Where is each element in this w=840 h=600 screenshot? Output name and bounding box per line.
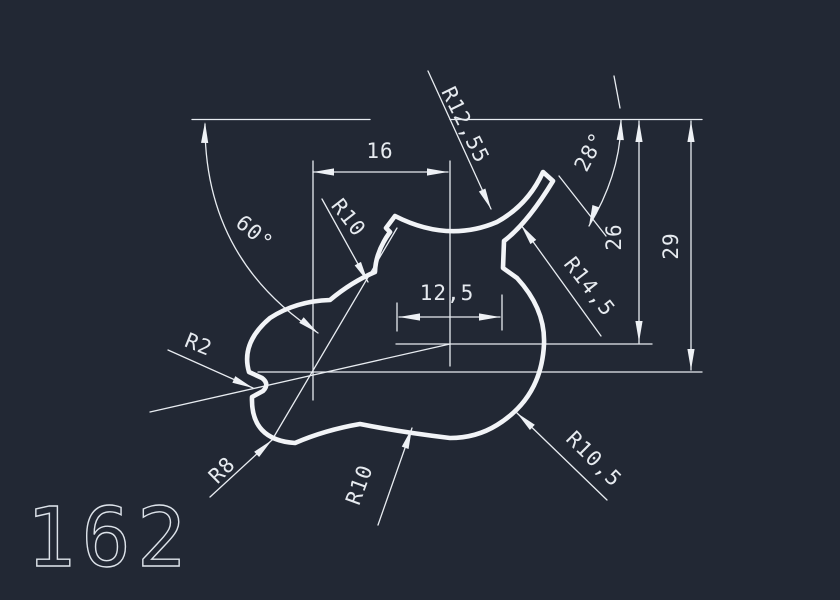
- profile-outline: [247, 172, 553, 443]
- arrow-12-5-right: [479, 313, 500, 320]
- dim-label-12-5: 12,5: [420, 281, 475, 305]
- dim-label-r2: R2: [181, 328, 215, 360]
- arrow-29-bottom: [687, 349, 694, 370]
- dim-label-angle-60: 60°: [231, 210, 278, 255]
- dim-label-29: 29: [659, 232, 683, 259]
- angle-28-side-line: [559, 176, 606, 236]
- part-number-label: 162: [26, 491, 192, 586]
- dim-label-r14-5: R14,5: [559, 252, 620, 321]
- dim-label-angle-28: 28°: [570, 128, 610, 175]
- arrow-29-top: [687, 121, 694, 142]
- dim-label-r10-5: R10,5: [561, 426, 626, 491]
- arrow-angle-28-top: [617, 119, 625, 140]
- cad-viewport: 60° 16 R10 R12,55 28° 26 29 12,5 R14,5 R…: [0, 0, 840, 600]
- arrow-16-right: [427, 168, 448, 175]
- arrow-angle-60-top: [201, 122, 209, 143]
- arrow-12-5-left: [399, 313, 420, 320]
- part-profile-path: [247, 172, 553, 443]
- cad-drawing-canvas: 60° 16 R10 R12,55 28° 26 29 12,5 R14,5 R…: [0, 0, 840, 600]
- dimension-labels: 60° 16 R10 R12,55 28° 26 29 12,5 R14,5 R…: [181, 83, 683, 508]
- arrow-16-left: [313, 168, 334, 175]
- arrow-26-top: [635, 121, 642, 142]
- arrow-26-bottom: [635, 321, 642, 342]
- arrow-r12-55: [479, 188, 494, 210]
- dim-label-r12-55: R12,55: [437, 83, 494, 167]
- dim-label-26: 26: [602, 223, 626, 250]
- angle-28-tail: [614, 76, 620, 108]
- dim-label-r10-bottom: R10: [341, 461, 378, 508]
- dim-label-16: 16: [366, 139, 393, 163]
- dim-label-r8: R8: [204, 452, 240, 488]
